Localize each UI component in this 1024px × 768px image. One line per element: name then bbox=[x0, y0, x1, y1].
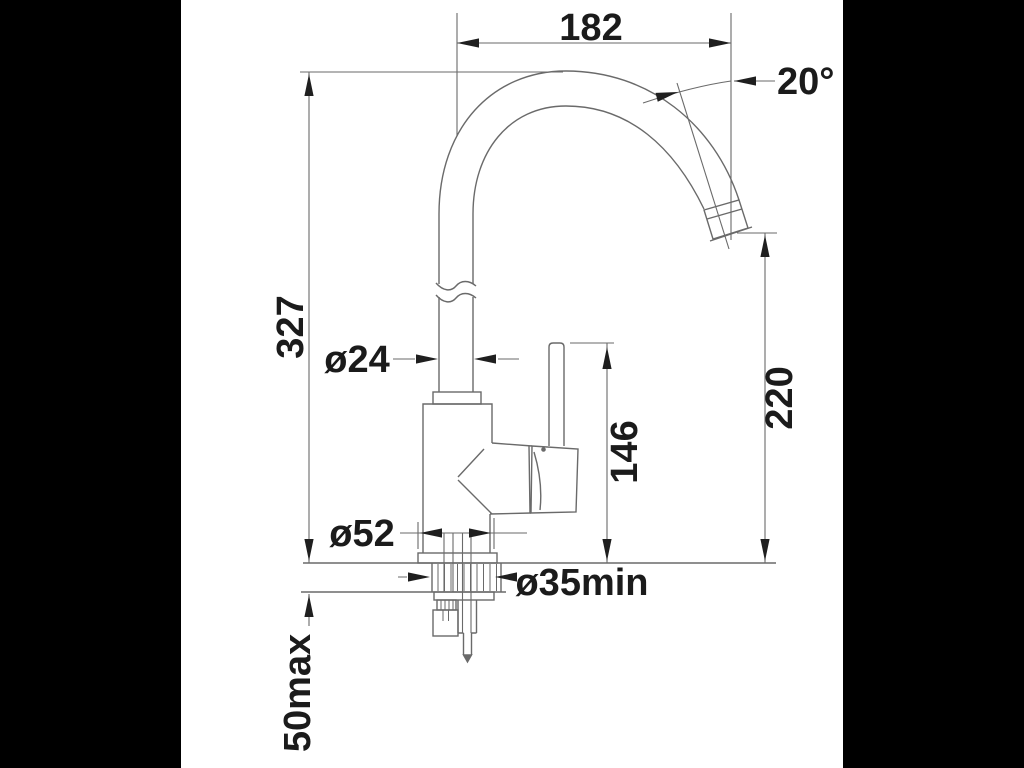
rod-tip bbox=[464, 655, 472, 662]
cartridge-neck bbox=[490, 443, 532, 514]
dim-label-outlet-height: 220 bbox=[759, 366, 801, 429]
mounting-nut bbox=[433, 610, 458, 636]
dim-label-spout-reach: 182 bbox=[559, 7, 622, 49]
supply-tube bbox=[458, 600, 477, 633]
threaded-rod bbox=[464, 633, 472, 655]
shank-threads bbox=[438, 564, 497, 591]
cartridge-dome-curve bbox=[534, 452, 541, 510]
aerator-detail bbox=[707, 209, 752, 241]
cartridge-housing bbox=[531, 446, 578, 513]
tangent-line-20deg bbox=[677, 83, 729, 249]
base-plate bbox=[418, 553, 497, 563]
mounting-bracket bbox=[434, 592, 494, 600]
dim-327-lines bbox=[300, 72, 563, 563]
dim-52-lines bbox=[400, 518, 527, 549]
dimension-labels: 182 20° 327 ø24 220 146 ø52 ø35min 50max bbox=[270, 7, 834, 752]
faucet-technical-drawing: 182 20° 327 ø24 220 146 ø52 ø35min 50max bbox=[0, 0, 1024, 768]
dim-label-mounting-hole: ø35min bbox=[515, 562, 648, 604]
joint-seams bbox=[458, 449, 492, 514]
tube-break-line bbox=[436, 282, 476, 290]
dim-label-handle-height: 146 bbox=[604, 420, 646, 483]
cartridge-screw-dot bbox=[542, 448, 545, 451]
dim-label-base-diameter: ø52 bbox=[329, 513, 394, 555]
tube-collar bbox=[433, 392, 481, 404]
spout-outer-curve bbox=[439, 71, 739, 284]
spout-inner-curve bbox=[473, 106, 704, 284]
dim-label-tube-diameter: ø24 bbox=[324, 339, 389, 381]
dim-label-deck-thickness: 50max bbox=[277, 634, 319, 752]
nut-inner-lines bbox=[443, 610, 449, 621]
handle-lever bbox=[549, 343, 564, 446]
stud-collar-ridges bbox=[441, 600, 453, 610]
shank-walls bbox=[432, 563, 501, 592]
dim-label-spout-angle: 20° bbox=[777, 61, 834, 103]
dim-label-overall-height: 327 bbox=[270, 295, 312, 358]
tube-break-line bbox=[436, 294, 476, 302]
technical-drawing-page: 182 20° 327 ø24 220 146 ø52 ø35min 50max bbox=[0, 0, 1024, 768]
spout-tube bbox=[439, 297, 473, 392]
